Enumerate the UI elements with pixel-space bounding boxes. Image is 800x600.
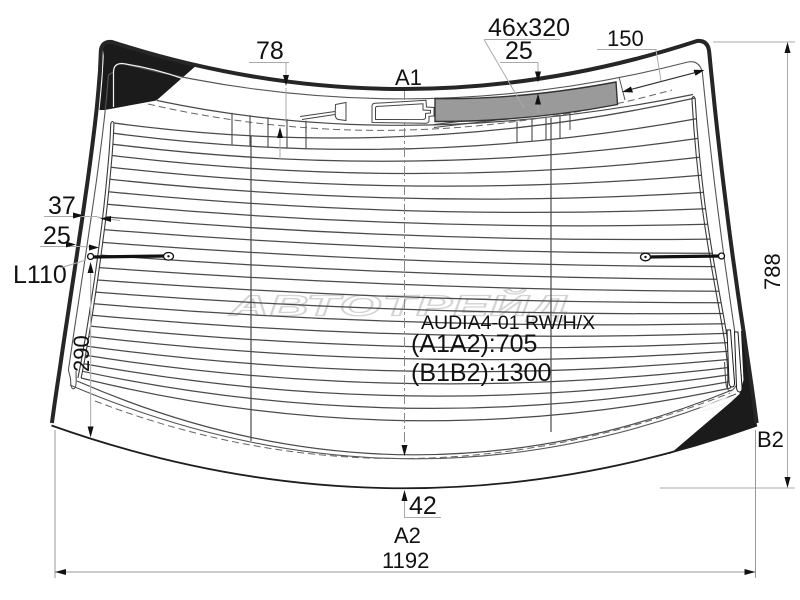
svg-text:42: 42 xyxy=(409,492,437,520)
svg-text:1192: 1192 xyxy=(382,548,429,573)
svg-text:(B1B2):1300: (B1B2):1300 xyxy=(411,359,551,387)
svg-text:L110: L110 xyxy=(13,261,67,289)
svg-text:37: 37 xyxy=(48,192,76,220)
svg-text:150: 150 xyxy=(607,26,644,51)
svg-text:A1: A1 xyxy=(395,65,422,90)
svg-text:A2: A2 xyxy=(394,523,421,548)
svg-text:78: 78 xyxy=(256,37,284,65)
svg-text:788: 788 xyxy=(760,253,785,290)
svg-text:B2: B2 xyxy=(757,427,784,452)
svg-text:(A1A2):705: (A1A2):705 xyxy=(411,330,537,358)
svg-text:25: 25 xyxy=(505,37,533,65)
